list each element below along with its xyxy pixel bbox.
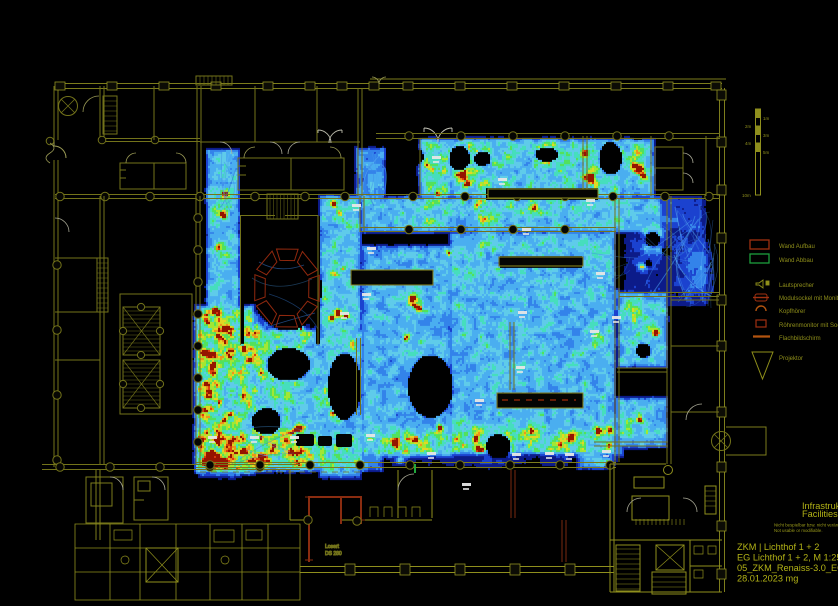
svg-text:2m: 2m <box>745 124 752 129</box>
svg-text:Not usable or modifiable.: Not usable or modifiable. <box>774 528 823 533</box>
svg-text:Modulsockel mit Monit: Modulsockel mit Monit <box>779 296 838 302</box>
svg-text:Lautsprecher: Lautsprecher <box>779 283 814 289</box>
svg-text:Nicht bespielbar bzw. nicht ve: Nicht bespielbar bzw. nicht veränderbar. <box>774 523 838 528</box>
svg-text:ZKM | Lichthof 1 + 2: ZKM | Lichthof 1 + 2 <box>737 542 819 552</box>
svg-text:Kopfhörer: Kopfhörer <box>779 309 805 315</box>
svg-text:EG Lichthof 1 + 2, M 1:25: EG Lichthof 1 + 2, M 1:25 <box>737 553 838 563</box>
svg-text:Wand Abbau: Wand Abbau <box>779 258 813 264</box>
svg-text:28.01.2023 mg: 28.01.2023 mg <box>737 574 798 584</box>
svg-text:05_ZKM_Renaiss-3.0_EG: 05_ZKM_Renaiss-3.0_EG <box>737 563 838 573</box>
svg-text:Losert: Losert <box>325 544 340 550</box>
svg-text:5m: 5m <box>763 150 770 155</box>
svg-text:Flachbildschirm: Flachbildschirm <box>779 336 821 342</box>
svg-text:4m: 4m <box>745 141 752 146</box>
svg-text:3m: 3m <box>763 133 770 138</box>
svg-text:Röhrenmonitor mit Soc: Röhrenmonitor mit Soc <box>779 323 838 329</box>
svg-text:Wand Aufbau: Wand Aufbau <box>779 244 815 250</box>
svg-text:10m: 10m <box>742 193 751 198</box>
svg-text:1m: 1m <box>763 116 770 121</box>
svg-text:Facilities: Facilities <box>802 509 838 519</box>
svg-text:DS 280: DS 280 <box>325 551 342 557</box>
svg-text:Projektor: Projektor <box>779 356 803 362</box>
